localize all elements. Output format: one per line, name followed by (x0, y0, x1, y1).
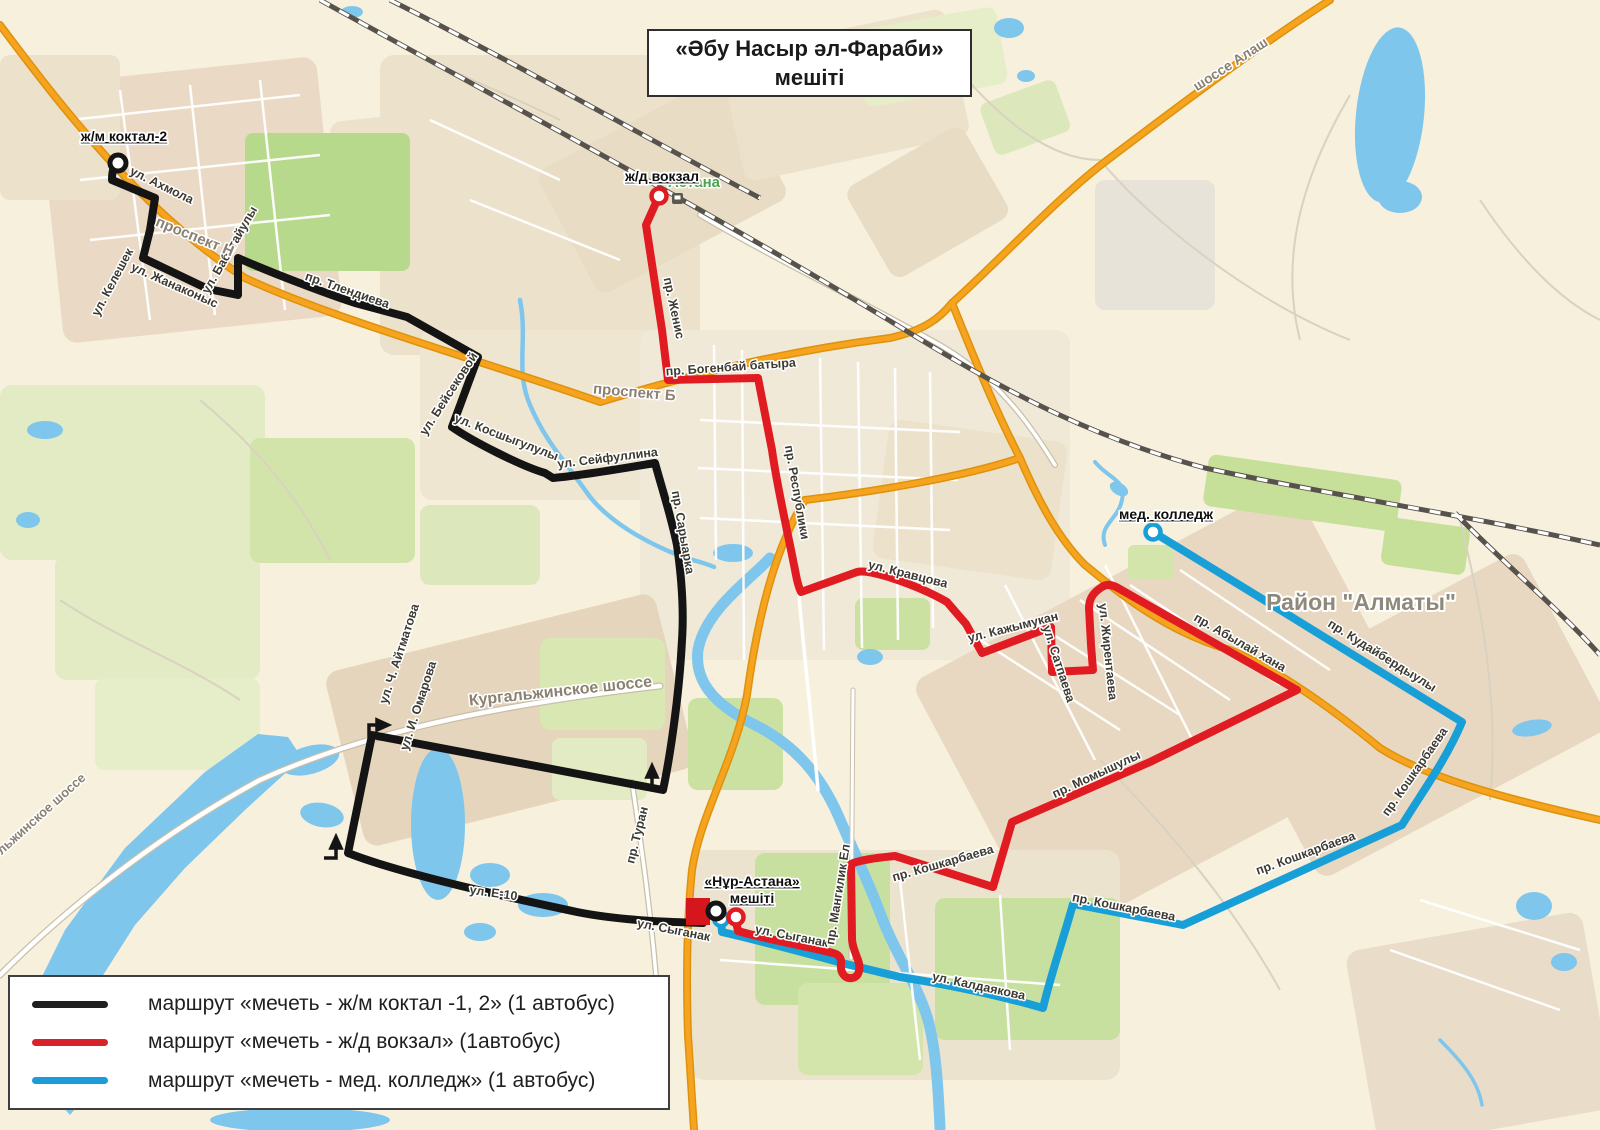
black-route-mosque-endpoint (708, 903, 724, 919)
street-label: ул. Е-10 (469, 883, 519, 904)
poi-label: «Нұр-Астана» (704, 873, 799, 889)
map-canvas: Астанаж/м коктал-2ж/д вокзалмед. колледж… (0, 0, 1600, 1130)
poi-label: мешіті (730, 890, 774, 906)
legend-swatch-black (32, 1001, 108, 1008)
legend-label-black: маршрут «мечеть - ж/м коктал -1, 2» (1 а… (148, 992, 615, 1016)
district-label: Район "Алматы" (1266, 589, 1456, 615)
legend-row-black-route: маршрут «мечеть - ж/м коктал -1, 2» (1 а… (10, 992, 668, 1016)
legend: маршрут «мечеть - ж/м коктал -1, 2» (1 а… (8, 975, 670, 1110)
legend-label-red: маршрут «мечеть - ж/д вокзал» (1автобус) (148, 1030, 561, 1054)
black-route-koktal-endpoint (110, 155, 126, 171)
legend-swatch-red (32, 1039, 108, 1046)
poi-label: ж/м коктал-2 (80, 128, 168, 144)
poi-label: мед. колледж (1119, 506, 1214, 522)
bus-routes-map: Астанаж/м коктал-2ж/д вокзалмед. колледж… (0, 0, 1600, 1130)
legend-row-red-route: маршрут «мечеть - ж/д вокзал» (1автобус) (10, 1030, 668, 1054)
map-title-line1: «Әбу Насыр әл-Фараби» (651, 34, 968, 63)
blue-route-college-endpoint (1146, 525, 1161, 540)
map-title-line2: мешіті (651, 63, 968, 92)
street-label: льжинское шоссе (0, 770, 88, 857)
legend-row-blue-route: маршрут «мечеть - мед. колледж» (1 автоб… (10, 1069, 668, 1093)
legend-swatch-blue (32, 1077, 108, 1084)
street-label: шоссе Алаш (1190, 34, 1271, 94)
map-title: «Әбу Насыр әл-Фараби» мешіті (647, 29, 972, 97)
legend-label-blue: маршрут «мечеть - мед. колледж» (1 автоб… (148, 1069, 595, 1093)
red-route-mosque-endpoint (729, 910, 744, 925)
street-label: пр. Туран (623, 805, 651, 865)
poi-label: ж/д вокзал (624, 168, 699, 184)
red-route-station-endpoint (652, 189, 667, 204)
